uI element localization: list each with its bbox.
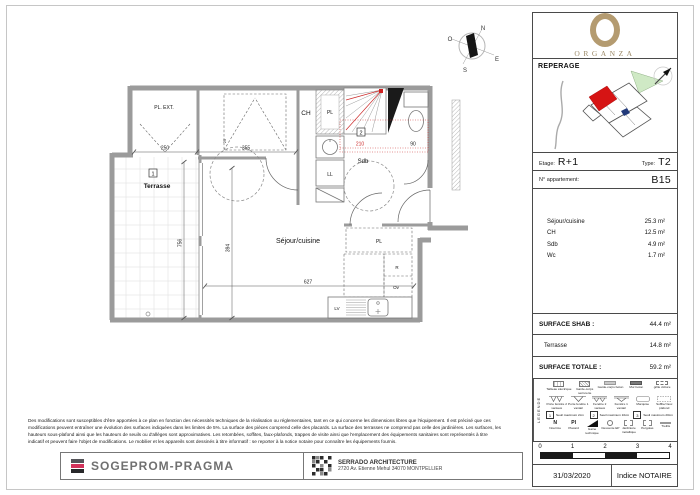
legend-label: Descente EP xyxy=(601,427,619,431)
dim-sejour-w: 627 xyxy=(304,280,313,286)
room-areas-box: Séjour/cuisine 25.3 m² CH 12.5 m² Sdb 4.… xyxy=(532,188,678,314)
legend-label: Treillis xyxy=(661,425,670,429)
type-value: T2 xyxy=(658,156,671,168)
compass-e: E xyxy=(495,57,499,63)
area-row: CH 12.5 m² xyxy=(547,228,665,239)
area-value: 25.3 m² xyxy=(645,217,665,228)
totale-value: 59.2 m² xyxy=(650,364,671,371)
seuil-num: 3 xyxy=(633,411,641,419)
floor-value: R+1 xyxy=(558,156,578,168)
dim-pl-ext: 250 xyxy=(161,146,170,152)
legend-title: LEGENDE xyxy=(533,379,543,441)
legend-label: Pergolas xyxy=(641,427,653,431)
seuil-legend-item: 1Seuil maximum 2cm xyxy=(546,411,588,419)
seuil-num: 1 xyxy=(546,411,554,419)
label-terrasse: Terrasse xyxy=(144,183,171,190)
compass-icon: N O E S xyxy=(448,26,499,74)
type-label: Type: xyxy=(642,161,655,167)
area-value: 4.9 m² xyxy=(648,240,665,251)
area-row: Sdb 4.9 m² xyxy=(547,240,665,251)
area-row: Wc 1.7 m² xyxy=(547,251,665,262)
legend-label: Fenêtre 2 vantaux xyxy=(589,403,611,410)
disclaimer-line: Des modifications sont susceptibles d'êt… xyxy=(28,418,528,425)
scale-tick: 1 xyxy=(571,444,574,450)
disclaimer-line: modifications peuvent entraîner une évol… xyxy=(28,425,528,432)
developer-name: SOGEPROM-PRAGMA xyxy=(91,459,234,473)
scale-tick: 2 xyxy=(603,444,606,450)
toilet xyxy=(404,92,428,132)
organza-monogram-icon xyxy=(590,13,620,47)
plan-sheet: 1 2 250 355 25 210 90 627 394 756 PL. EX… xyxy=(0,0,700,495)
developer-block: SOGEPROM-PRAGMA xyxy=(61,453,304,479)
shab-value: 44.4 m² xyxy=(650,321,671,328)
area-label: CH xyxy=(547,228,556,239)
shaft-triangle-top xyxy=(388,88,404,133)
scale-tick: 4 xyxy=(668,444,671,450)
seuil-num: 2 xyxy=(590,411,598,419)
terrasse-value: 14.8 m² xyxy=(650,342,671,349)
area-value: 1.7 m² xyxy=(648,251,665,262)
scale-tick: 3 xyxy=(636,444,639,450)
dim-niche: 25 xyxy=(222,138,227,143)
totale-label: SURFACE TOTALE : xyxy=(539,364,601,371)
legend-box: LEGENDE Tableau électrique Garde-corps s… xyxy=(532,378,678,442)
architect-address: 2720 Av. Etienne Mehul 34070 MONTPELLIER xyxy=(338,466,442,472)
floor-label: Etage: xyxy=(539,161,555,167)
area-label: Wc xyxy=(547,251,556,262)
footer-box: SOGEPROM-PRAGMA SERRADO ARCHITECTURE xyxy=(60,452,523,480)
label-lv: LV xyxy=(334,306,339,311)
legal-disclaimer: Des modifications sont susceptibles d'êt… xyxy=(28,418,528,446)
legend-label: grille clôture xyxy=(654,386,671,390)
label-ll: LL xyxy=(327,172,333,178)
terrace-drain xyxy=(146,312,150,316)
date-row: 31/03/2020 Indice NOTAIRE xyxy=(532,464,678,487)
legend-label: Seuil maximum 10cm xyxy=(600,413,630,417)
washing-machine xyxy=(316,160,344,202)
architect-block: SERRADO ARCHITECTURE 2720 Av. Etienne Me… xyxy=(304,453,522,479)
mini-compass-icon xyxy=(654,67,672,85)
legend-label: Fenêtre 1 vantail xyxy=(611,403,633,410)
scale-bar xyxy=(540,452,670,459)
area-label: Sdb xyxy=(547,240,558,251)
seuil-legend-item: 2Seuil maximum 10cm xyxy=(590,411,632,419)
surface-totale-row: SURFACE TOTALE : 59.2 m² xyxy=(532,356,678,379)
legend-label: Placard xyxy=(568,427,579,431)
terrasse-label: Terrasse xyxy=(544,343,567,349)
terrasse-row: Terrasse 14.8 m² xyxy=(532,334,678,357)
label-pl-entree: PL xyxy=(376,239,382,245)
label-sejour: Séjour/cuisine xyxy=(276,238,320,245)
dim-ch: 355 xyxy=(242,146,251,152)
legend-label: Soffite/ faux plafond xyxy=(654,403,676,410)
compass-o: O xyxy=(448,37,453,43)
shower xyxy=(344,88,386,134)
surface-shab-row: SURFACE SHAB : 44.4 m² xyxy=(532,313,678,335)
label-pl-ext: PL. EXT. xyxy=(154,105,173,111)
terrace-tile-grid xyxy=(114,157,199,320)
serrado-logo-icon xyxy=(312,456,332,476)
door-swings xyxy=(266,158,430,225)
area-row: Séjour/cuisine 25.3 m² xyxy=(547,217,665,228)
gaine-technique-icon xyxy=(587,420,598,427)
revision-index: Indice NOTAIRE xyxy=(612,465,677,486)
shab-label: SURFACE SHAB : xyxy=(539,321,594,328)
reperage-box: REPERAGE xyxy=(532,58,678,153)
legend-label: Garde-corps serrurerie xyxy=(572,388,598,395)
legend-label: Nourrice xyxy=(549,427,561,431)
scale-ticks: 0 1 2 3 4 xyxy=(540,444,670,452)
area-label: Séjour/cuisine xyxy=(547,217,585,228)
legend-label: Jardinière métallique xyxy=(620,427,638,434)
apartment-number: B15 xyxy=(651,174,671,186)
dim-terrasse-h: 756 xyxy=(178,239,184,248)
legend-label: Tableau électrique xyxy=(546,388,571,392)
brand-box: ORGANZA xyxy=(532,12,678,59)
label-pl: PL xyxy=(327,110,333,116)
site-locator-map xyxy=(533,59,677,152)
apartment-row: N° appartement: B15 xyxy=(532,170,678,189)
area-value: 12.5 m² xyxy=(645,228,665,239)
brand-name: ORGANZA xyxy=(574,49,635,58)
legend-label: Mur béton xyxy=(629,386,643,390)
dim-sejour-h: 394 xyxy=(226,244,232,253)
floor-row: Etage: R+1 Type: T2 xyxy=(532,152,678,171)
label-sdb: Sdb xyxy=(358,159,369,165)
dim-wc: 90 xyxy=(410,142,416,148)
reperage-title: REPERAGE xyxy=(538,63,580,70)
label-ch: CH xyxy=(301,110,311,117)
plan-date: 31/03/2020 xyxy=(533,465,612,486)
shower-corner-dot xyxy=(379,89,383,93)
label-r: R xyxy=(395,265,399,270)
compass-s: S xyxy=(463,68,467,74)
apartment-label: N° appartement: xyxy=(539,177,579,183)
dim-sdb: 210 xyxy=(356,142,365,148)
sogeprom-logo-icon xyxy=(71,459,84,473)
legend-label: Porte fenêtre 2 vantaux xyxy=(546,403,568,410)
seuil-2: 2 xyxy=(359,131,362,137)
legend-label: Porte fenêtre 1 vantail xyxy=(568,403,590,410)
scale-bar-box: 0 1 2 3 4 xyxy=(532,441,678,465)
dimension-lines xyxy=(132,150,416,321)
label-ov: Ov xyxy=(393,285,400,290)
disclaimer-line: indicatif et peuvent faire l'objet de mo… xyxy=(28,439,528,446)
disclaimer-line: hauteurs sous-plafond ainsi que les haut… xyxy=(28,432,528,439)
compass-n: N xyxy=(481,26,485,32)
scale-tick: 0 xyxy=(538,444,541,450)
legend-label: Marquise xyxy=(636,403,649,407)
seuil-1: 1 xyxy=(151,172,154,178)
legend-label: Gaine technique xyxy=(583,428,601,435)
legend-label: Garde-corps béton xyxy=(598,386,624,390)
legend-label: Seuil maximum 20cm xyxy=(643,413,673,417)
seuil-legend-item: 3Seuil maximum 20cm xyxy=(633,411,675,419)
legend-label: Seuil maximum 2cm xyxy=(556,413,584,417)
